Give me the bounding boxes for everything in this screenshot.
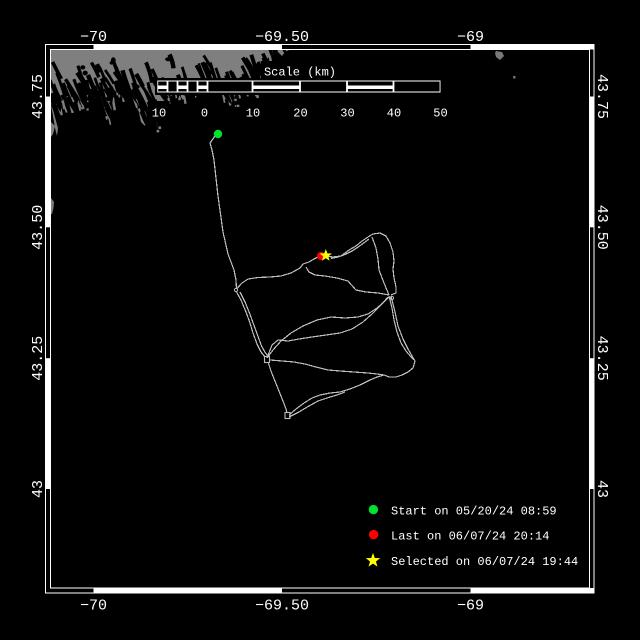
svg-text:43.75: 43.75 (593, 74, 610, 119)
svg-text:50: 50 (433, 107, 447, 121)
svg-text:0: 0 (201, 107, 208, 121)
svg-text:−69: −69 (457, 29, 484, 46)
svg-text:20: 20 (293, 107, 307, 121)
svg-text:40: 40 (387, 107, 401, 121)
svg-text:43.25: 43.25 (593, 336, 610, 381)
svg-text:Last on 06/07/24 20:14: Last on 06/07/24 20:14 (391, 530, 549, 544)
svg-text:30: 30 (340, 107, 354, 121)
svg-text:Selected on 06/07/24 19:44: Selected on 06/07/24 19:44 (391, 555, 578, 569)
svg-text:10: 10 (152, 107, 166, 121)
svg-text:43.50: 43.50 (593, 205, 610, 250)
svg-text:43.25: 43.25 (30, 336, 47, 381)
svg-text:43: 43 (30, 480, 47, 498)
svg-text:43.50: 43.50 (30, 205, 47, 250)
svg-text:Scale (km): Scale (km) (264, 66, 336, 80)
svg-text:−70: −70 (80, 29, 107, 46)
svg-text:Start on 05/20/24 08:59: Start on 05/20/24 08:59 (391, 504, 557, 518)
svg-text:−70: −70 (80, 598, 107, 615)
svg-text:10: 10 (246, 107, 260, 121)
svg-text:−69.50: −69.50 (255, 598, 309, 615)
svg-text:43: 43 (593, 480, 610, 498)
svg-text:43.75: 43.75 (30, 74, 47, 119)
svg-text:−69.50: −69.50 (255, 29, 309, 46)
svg-text:−69: −69 (457, 598, 484, 615)
